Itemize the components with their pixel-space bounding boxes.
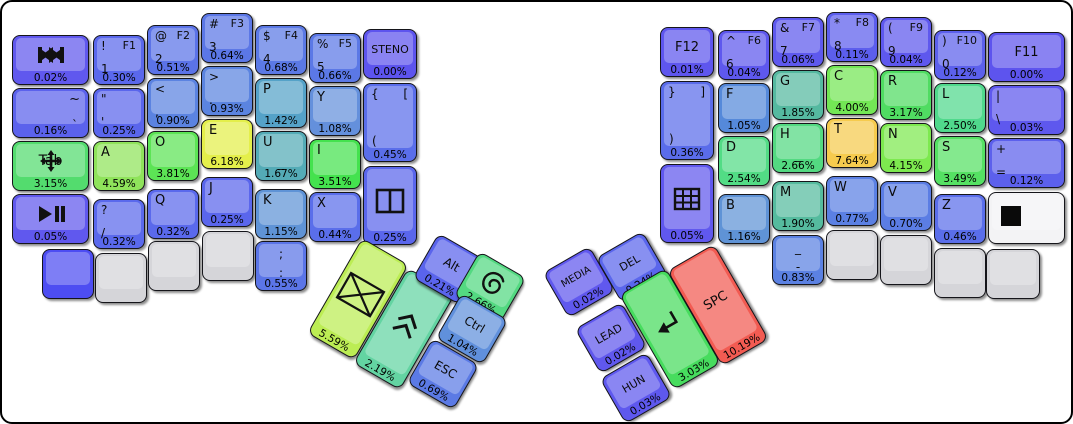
key-center-legends (664, 167, 710, 230)
key-f: F1.05% (718, 83, 770, 133)
key-legend: MEDIA (560, 265, 593, 290)
key-legend: D (726, 141, 736, 154)
key-legend: J (209, 182, 213, 195)
key-face (992, 88, 1061, 121)
key-usage-percent: 0.68% (256, 62, 306, 74)
key-legend: Q (155, 194, 165, 207)
key-usage-percent: 0.25% (94, 125, 144, 137)
key-0-f10: )F1000.12% (934, 30, 986, 80)
key-usage-percent: 0.32% (148, 226, 198, 238)
key-legend: ~ (69, 93, 80, 106)
key-t: T7.64% (826, 118, 878, 168)
key-d: D2.54% (718, 136, 770, 186)
key-usage-percent: 2.50% (935, 120, 985, 132)
key-legend: S (942, 141, 950, 154)
black-square-icon (1001, 206, 1021, 226)
key-usage-percent: 2.66% (773, 160, 823, 172)
key-q: Q0.32% (147, 189, 199, 239)
key-usage-percent: 4.15% (881, 160, 931, 172)
key-usage-percent: 0.25% (202, 214, 252, 226)
key-legend: ) (669, 133, 674, 145)
key-usage-percent: 0.77% (827, 213, 877, 225)
key-usage-percent: 0.30% (94, 72, 144, 84)
key-usage-percent: 0.16% (13, 125, 88, 137)
key-v: V0.70% (880, 181, 932, 231)
key-usage-percent: 3.49% (935, 173, 985, 185)
key-legend: + (996, 143, 1006, 155)
key-legend: I (317, 144, 321, 157)
key-media-prev-next: 0.02% (12, 35, 89, 85)
key-legend: H (780, 128, 790, 141)
key-u: U_1.67% (255, 131, 307, 181)
key-grid: 0.05% (660, 164, 714, 243)
key-blank (148, 241, 200, 291)
key-legend: T (834, 123, 842, 136)
key-comma: <,0.90% (147, 78, 199, 128)
key-k: K1.15% (255, 189, 307, 239)
key-legend: E (209, 124, 217, 137)
key-j: J0.25% (201, 177, 253, 227)
key-m: M1.90% (772, 181, 824, 231)
key-legend: ( (372, 135, 377, 147)
key-legend: $ (263, 30, 271, 42)
key-usage-percent: 4.00% (827, 102, 877, 114)
key-usage-percent: 0.00% (989, 69, 1064, 81)
key-legend: SPC (701, 289, 729, 313)
key-legend: @ (155, 30, 167, 42)
key-legend: O (155, 136, 165, 149)
key-legend: F3 (231, 18, 244, 29)
key-c: C4.00% (826, 65, 878, 115)
key-usage-percent: 0.25% (364, 232, 416, 244)
keyboard-heatmap: 0.02%~`0.16%Tab3.15%0.05%!F110.30%"'0.25… (0, 0, 1073, 424)
key-legend: V (888, 186, 897, 199)
key-usage-percent: 0.44% (310, 229, 360, 241)
key-center-legends (16, 38, 85, 72)
key-2-f2: @F220.51% (147, 25, 199, 75)
key-usage-percent: 0.51% (148, 62, 198, 74)
key-legend: F2 (177, 30, 190, 41)
key-usage-percent: 1.67% (256, 168, 306, 180)
key-legend: } (668, 86, 676, 98)
key-center-legends: Tab (16, 144, 85, 178)
key-legend: F1 (123, 40, 136, 51)
key-n: N4.15% (880, 123, 932, 173)
key-i: I3.51% (309, 139, 361, 189)
key-usage-percent: 0.32% (94, 236, 144, 248)
key-blank (880, 235, 932, 285)
key-usage-percent: 1.85% (773, 107, 823, 119)
key-window-split: 0.25% (363, 166, 417, 245)
key-legend: G (780, 75, 790, 88)
grid-icon (673, 187, 701, 211)
key-usage-percent: 0.04% (719, 67, 769, 79)
key-center-legends (367, 169, 413, 232)
key-usage-percent: 4.59% (94, 178, 144, 190)
key-h: H_2.66% (772, 123, 824, 173)
key-usage-percent: 0.90% (148, 115, 198, 127)
key-legend: L (942, 88, 949, 101)
key-face (938, 251, 982, 284)
key-legend: M (780, 186, 791, 199)
key-usage-percent: 0.02% (13, 72, 88, 84)
key-legend: ( (888, 22, 893, 34)
key-usage-percent: 0.70% (881, 218, 931, 230)
key-right-bracket: }])0.36% (660, 81, 714, 160)
key-blank (986, 249, 1040, 299)
envelope-icon (334, 270, 386, 319)
key-quote: "'0.25% (93, 88, 145, 138)
key-legend: ? (101, 204, 107, 216)
key-usage-percent: 2.54% (719, 173, 769, 185)
key-center-legends: F11 (992, 35, 1061, 69)
key-blank (202, 231, 254, 281)
key-question-slash: ?/0.32% (93, 199, 145, 249)
key-l: L2.50% (934, 83, 986, 133)
key-usage-percent: 0.05% (13, 231, 88, 243)
key-5-f5: %F550.66% (309, 33, 361, 83)
key-face (830, 233, 874, 266)
key-usage-percent: 0.01% (661, 64, 713, 76)
key-play-pause: 0.05% (12, 194, 89, 244)
key-f12: F120.01% (660, 27, 714, 77)
key-legend: ESC (432, 359, 458, 381)
key-center-legends: STENO (367, 32, 413, 66)
key-o: O3.81% (147, 131, 199, 181)
key-7-f7: &F770.06% (772, 17, 824, 67)
key-legend: ^ (726, 35, 736, 47)
key-legend: F7 (802, 22, 815, 33)
key-legend: C (834, 70, 843, 83)
key-steno: STENO0.00% (363, 29, 417, 79)
key-left-bracket: {[(0.45% (363, 83, 417, 162)
key-usage-percent: 0.12% (989, 175, 1064, 187)
key-usage-percent: 7.64% (827, 155, 877, 167)
key-usage-percent: 0.45% (364, 149, 416, 161)
key-legend: Z (942, 199, 951, 212)
key-g: G1.85% (772, 70, 824, 120)
key-legend: B (726, 199, 735, 212)
key-pipe-backslash: |\0.03% (988, 85, 1065, 135)
key-legend: DEL (617, 253, 641, 273)
key-underscore-dash: _-0.83% (772, 235, 824, 285)
key-8-f8: *F880.11% (826, 12, 878, 62)
key-1-f1: !F110.30% (93, 35, 145, 85)
key-legend: X (317, 197, 326, 210)
key-legend: U (263, 136, 273, 149)
key-legend: % (317, 38, 328, 50)
key-legend: F6 (748, 35, 761, 46)
key-legend: F8 (856, 17, 869, 28)
key-legend: Alt (441, 255, 461, 274)
key-y: Y1.08% (309, 86, 361, 136)
key-usage-percent: 0.46% (935, 231, 985, 243)
key-legend: _ (773, 242, 823, 254)
key-legend: > (209, 71, 219, 83)
key-legend: F11 (1014, 46, 1038, 59)
key-legend: & (780, 22, 789, 34)
key-face (152, 244, 196, 277)
key-usage-percent: 6.18% (202, 156, 252, 168)
key-semicolon: ;:0.55% (255, 241, 307, 291)
key-usage-percent: 0.64% (202, 50, 252, 62)
window-split-icon (375, 188, 405, 214)
key-6-f6: ^F660.04% (718, 30, 770, 80)
double-chevron-up-icon (388, 306, 425, 343)
key-usage-percent: 0.83% (773, 272, 823, 284)
key-z: Z0.46% (934, 194, 986, 244)
key-legend: HUN (620, 373, 647, 395)
key-usage-percent: 3.51% (310, 176, 360, 188)
key-blank-blue (42, 249, 94, 299)
key-w: W0.77% (826, 176, 878, 226)
enter-arrow-icon (648, 306, 687, 344)
key-usage-percent: 3.81% (148, 168, 198, 180)
key-legend: Ctrl (462, 314, 486, 335)
key-usage-percent: 0.66% (310, 70, 360, 82)
key-tilde-backtick: ~`0.16% (12, 88, 89, 138)
key-face (206, 234, 250, 267)
key-legend: F12 (675, 41, 699, 54)
key-blank (826, 230, 878, 280)
key-legend: | (996, 90, 1000, 102)
key-legend: A (101, 146, 110, 159)
key-legend: K (263, 194, 272, 207)
key-r: R3.17% (880, 70, 932, 120)
key-usage-percent: 0.55% (256, 278, 306, 290)
key-3-f3: #F330.64% (201, 13, 253, 63)
key-legend: N (888, 128, 898, 141)
key-legend: P (263, 83, 271, 96)
key-usage-percent: 0.06% (773, 54, 823, 66)
key-4-f4: $F440.68% (255, 25, 307, 75)
key-usage-percent: 0.05% (661, 230, 713, 242)
key-usage-percent: 0.93% (202, 103, 252, 115)
key-face (884, 238, 928, 271)
key-tab: Tab3.15% (12, 141, 89, 191)
key-legend: # (209, 18, 219, 30)
key-9-f9: (F990.04% (880, 17, 932, 67)
key-legend: Tab (39, 154, 63, 168)
key-x: X0.44% (309, 192, 361, 242)
play-pause-icon (37, 204, 65, 224)
key-legend: F4 (285, 30, 298, 41)
key-boot (988, 192, 1065, 244)
key-legend: { (371, 88, 379, 100)
key-legend: ; (256, 248, 306, 260)
key-usage-percent: 1.16% (719, 231, 769, 243)
key-usage-percent: 1.15% (256, 226, 306, 238)
key-legend: ! (101, 40, 106, 52)
key-blank (934, 248, 986, 298)
key-usage-percent: 0.36% (661, 147, 713, 159)
key-usage-percent: 1.08% (310, 123, 360, 135)
key-p: P1.42% (255, 78, 307, 128)
key-s: S3.49% (934, 136, 986, 186)
key-period: >.0.93% (201, 66, 253, 116)
key-usage-percent: 3.15% (13, 178, 88, 190)
key-usage-percent: 0.04% (881, 54, 931, 66)
key-usage-percent: 0.11% (827, 49, 877, 61)
key-legend: [ (403, 88, 408, 100)
key-legend: F (726, 88, 733, 101)
key-legend: F10 (957, 35, 977, 46)
key-face (990, 252, 1036, 285)
key-usage-percent: 1.05% (719, 120, 769, 132)
next-track-icon (37, 45, 65, 65)
key-legend: R (888, 75, 897, 88)
key-legend: W (834, 181, 847, 194)
key-face (46, 252, 90, 285)
key-usage-percent: 1.90% (773, 218, 823, 230)
key-legend: F9 (910, 22, 923, 33)
key-e: E6.18% (201, 119, 253, 169)
key-legend: < (155, 83, 165, 95)
key-legend: STENO (371, 44, 409, 55)
key-a: A4.59% (93, 141, 145, 191)
key-usage-percent: 3.17% (881, 107, 931, 119)
key-usage-percent: 0.12% (935, 67, 985, 79)
key-legend: " (101, 93, 107, 105)
key-legend: LEAD (593, 322, 624, 346)
key-center-legends: F12 (664, 30, 710, 64)
key-center-legends (16, 197, 85, 231)
key-legend: * (834, 17, 840, 29)
key-f11: F110.00% (988, 32, 1065, 82)
key-usage-percent: 1.42% (256, 115, 306, 127)
key-legend: ) (942, 35, 947, 47)
key-plus-equals: +=0.12% (988, 138, 1065, 188)
key-usage-percent: 0.03% (989, 122, 1064, 134)
key-legend: ] (700, 86, 705, 98)
key-usage-percent: 0.00% (364, 66, 416, 78)
key-legend: F5 (339, 38, 352, 49)
key-legend: Y (317, 91, 325, 104)
key-face (99, 256, 143, 289)
key-b: B1.16% (718, 194, 770, 244)
key-blank (95, 253, 147, 303)
